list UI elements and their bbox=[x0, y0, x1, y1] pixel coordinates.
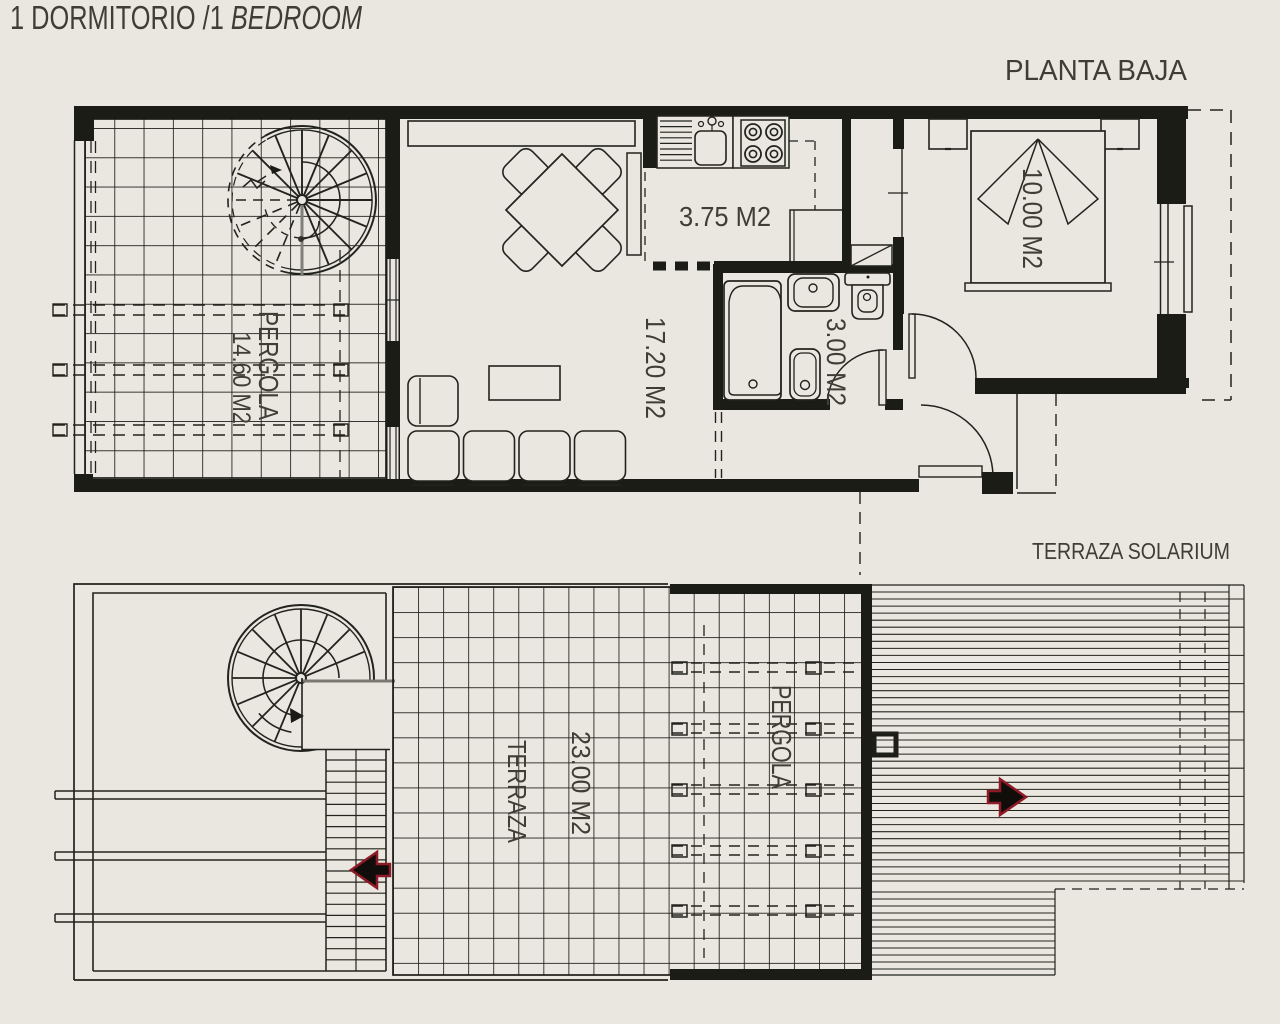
svg-text:TERRAZA SOLARIUM: TERRAZA SOLARIUM bbox=[1032, 538, 1230, 564]
svg-text:TERRAZA: TERRAZA bbox=[502, 740, 532, 844]
svg-text:23.00 M2: 23.00 M2 bbox=[566, 731, 596, 835]
svg-text:3.75 M2: 3.75 M2 bbox=[679, 201, 771, 232]
svg-text:14.60 M2: 14.60 M2 bbox=[227, 332, 255, 424]
svg-text:3.00 M2: 3.00 M2 bbox=[821, 318, 851, 406]
svg-text:PLANTA BAJA: PLANTA BAJA bbox=[1005, 55, 1188, 87]
svg-text:10.00 M2: 10.00 M2 bbox=[1017, 168, 1048, 269]
svg-text:PERGOLA: PERGOLA bbox=[253, 311, 284, 420]
svg-text:17.20 M2: 17.20 M2 bbox=[640, 317, 671, 419]
svg-text:1 DORMITORIO /1 BEDROOM: 1 DORMITORIO /1 BEDROOM bbox=[10, 0, 362, 36]
svg-text:PERGOLA: PERGOLA bbox=[766, 685, 797, 789]
